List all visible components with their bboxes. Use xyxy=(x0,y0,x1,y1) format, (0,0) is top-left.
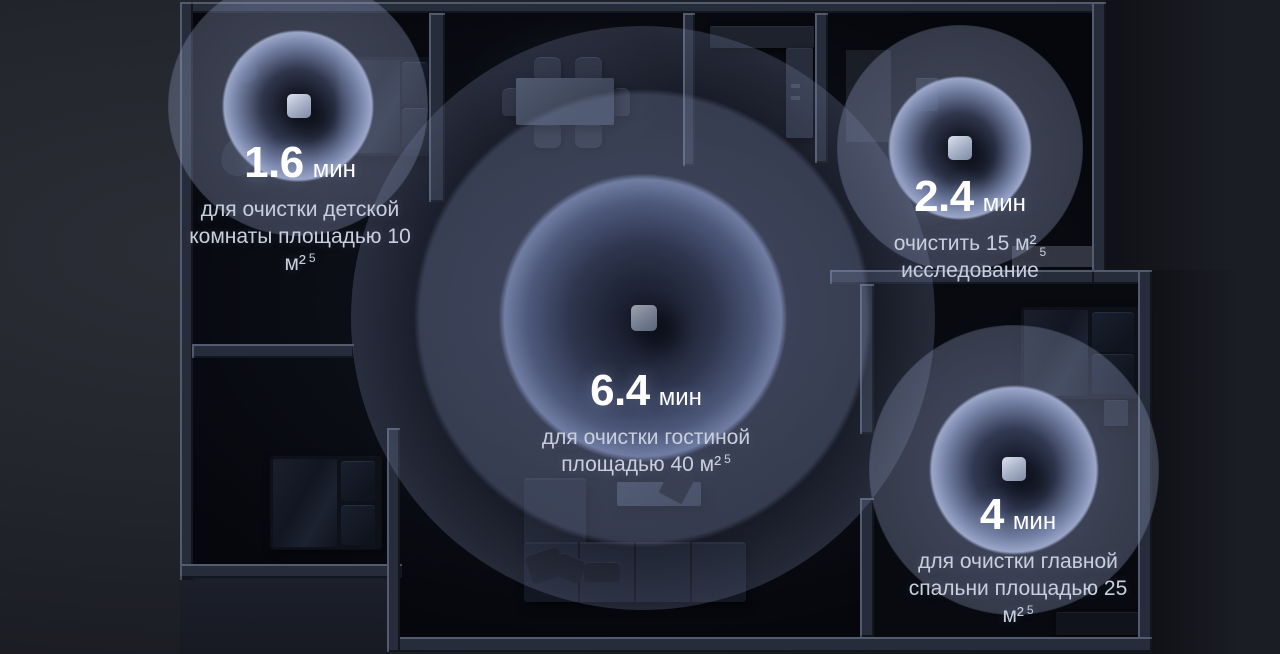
floorplan-scene: 1.6 мин для очистки детской комнаты площ… xyxy=(0,0,1280,654)
pillow xyxy=(341,461,375,501)
hall-shelf xyxy=(710,26,814,48)
study-cabinet xyxy=(916,78,938,111)
footnote-marker: 5 xyxy=(1040,245,1047,259)
dining-chair xyxy=(575,125,602,148)
footnote-marker: 5 xyxy=(1027,603,1034,617)
mattress xyxy=(273,459,337,547)
pillow xyxy=(402,62,428,104)
wall-outer-bottom xyxy=(387,637,1152,652)
desc-line: м²5 xyxy=(868,602,1168,629)
annotation-master-bedroom: 4 мин для очистки главной спальни площад… xyxy=(868,490,1168,629)
wall-outer-bottom-left xyxy=(180,564,402,578)
pillow xyxy=(341,505,375,545)
desc-line: спальни площадью 25 xyxy=(868,575,1168,602)
cleaning-description: для очистки гостиной площадью 40 м²5 xyxy=(496,424,796,478)
wall-nursery-bottom xyxy=(192,344,354,358)
annotation-nursery: 1.6 мин для очистки детской комнаты площ… xyxy=(150,138,450,277)
sofa-pillow xyxy=(584,562,620,582)
dining-chair xyxy=(575,57,602,80)
footnote-marker: 5 xyxy=(724,452,731,466)
cabinet-handle xyxy=(791,96,800,100)
wall-hall-right xyxy=(815,13,828,163)
desc-line: очистить 15 м²5 xyxy=(820,230,1120,257)
mattress xyxy=(1024,310,1088,396)
cleaning-description: очистить 15 м²5 исследование xyxy=(820,230,1120,284)
cleaning-time: 6.4 мин xyxy=(496,366,796,414)
cleaning-description: для очистки детской комнаты площадью 10 … xyxy=(150,196,450,277)
purifier-device-icon xyxy=(948,136,972,160)
desc-line: для очистки главной xyxy=(868,548,1168,575)
pillow xyxy=(1092,312,1134,352)
wall-master-left-upper xyxy=(860,284,874,434)
dining-table xyxy=(516,78,614,125)
desc-line: комнаты площадью 10 xyxy=(150,223,450,250)
master-bed xyxy=(1022,308,1138,398)
cleaning-time: 4 мин xyxy=(868,490,1168,538)
time-value: 2.4 xyxy=(914,172,974,222)
time-unit: мин xyxy=(1013,508,1056,536)
dining-chair xyxy=(534,57,561,80)
wall-bedroom-right xyxy=(387,428,400,652)
dining-chair xyxy=(612,88,630,116)
annotation-living-room: 6.4 мин для очистки гостиной площадью 40… xyxy=(496,366,796,478)
time-value: 4 xyxy=(980,490,1004,540)
time-unit: мин xyxy=(659,384,702,412)
dining-chair xyxy=(534,125,561,148)
cleaning-time: 2.4 мин xyxy=(820,172,1120,220)
open-door-panel xyxy=(846,50,891,142)
desc-line: для очистки детской xyxy=(150,196,450,223)
hall-cabinet xyxy=(786,48,813,138)
cabinet-handle xyxy=(791,84,800,88)
time-unit: мин xyxy=(313,156,356,184)
sofa-chaise xyxy=(524,478,586,544)
wall-outer-top xyxy=(180,2,1106,13)
outside-area xyxy=(1106,0,1280,284)
desc-line: м²5 xyxy=(150,250,450,277)
terrace-floor xyxy=(180,578,390,654)
wall-dining-right xyxy=(683,13,695,166)
desc-line: для очистки гостиной xyxy=(496,424,796,451)
time-unit: мин xyxy=(983,190,1026,218)
time-value: 1.6 xyxy=(244,138,304,188)
desc-line: исследование xyxy=(820,257,1120,284)
purifier-device-icon xyxy=(287,94,311,118)
annotation-study: 2.4 мин очистить 15 м²5 исследование xyxy=(820,172,1120,284)
wall-outer-left xyxy=(180,2,193,580)
bedroom-bed xyxy=(271,457,381,549)
pillow xyxy=(1092,354,1134,394)
purifier-device-icon xyxy=(1002,457,1026,481)
nightstand xyxy=(1104,400,1128,426)
footnote-marker: 5 xyxy=(309,251,316,265)
time-value: 6.4 xyxy=(590,366,650,416)
desc-line: площадью 40 м²5 xyxy=(496,451,796,478)
purifier-device-icon xyxy=(631,305,657,331)
cleaning-description: для очистки главной спальни площадью 25 … xyxy=(868,548,1168,629)
outside-area xyxy=(1152,270,1280,654)
cleaning-time: 1.6 мин xyxy=(150,138,450,186)
